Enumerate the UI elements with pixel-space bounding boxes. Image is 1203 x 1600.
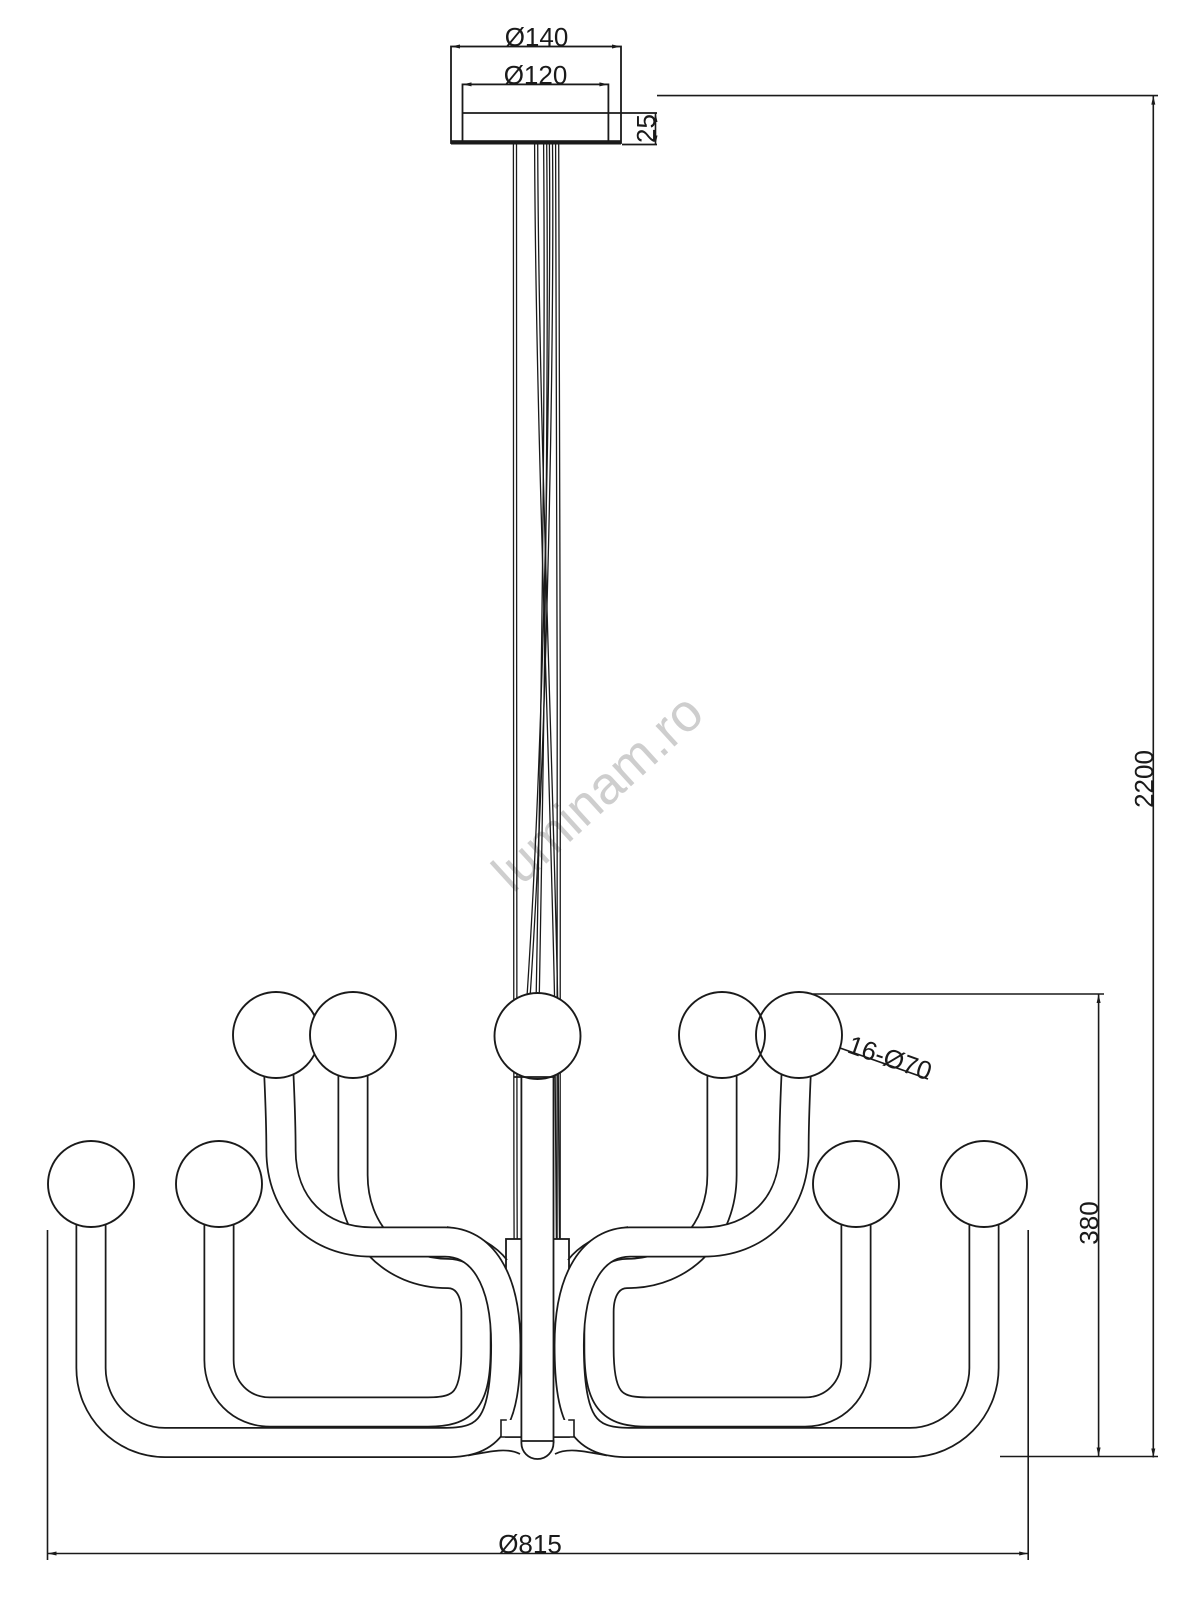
svg-text:25: 25 <box>631 114 661 143</box>
svg-text:16-Ø70: 16-Ø70 <box>844 1029 936 1086</box>
svg-text:Ø815: Ø815 <box>498 1529 562 1559</box>
svg-text:Ø140: Ø140 <box>505 22 569 52</box>
svg-text:380: 380 <box>1074 1201 1104 1244</box>
svg-text:2200: 2200 <box>1129 750 1159 808</box>
svg-text:Ø120: Ø120 <box>504 60 568 90</box>
